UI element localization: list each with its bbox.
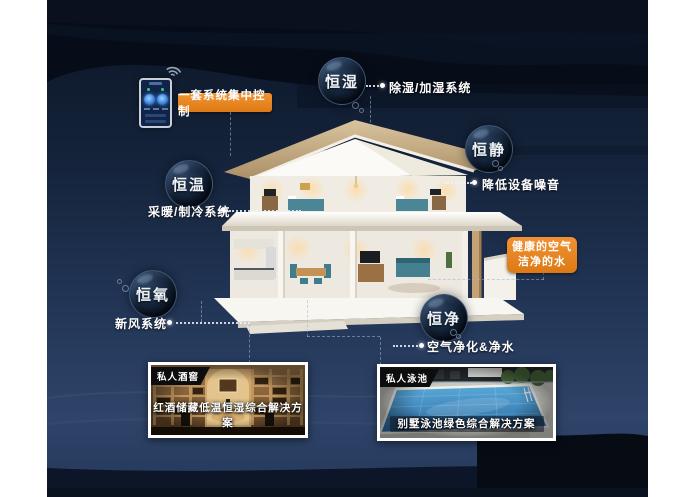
pool-caption: 别墅泳池绿色综合解决方案 (390, 416, 544, 432)
wine-cellar-tag: 私人酒窖 (151, 367, 210, 385)
bubble-constant-temperature-label: 恒温 (172, 174, 206, 195)
control-phone (139, 78, 172, 128)
bubble-constant-clean-label: 恒净 (427, 308, 461, 329)
wine-cellar-caption: 红酒储藏低温恒湿综合解决方案 (151, 400, 305, 430)
phone-text-row (153, 108, 159, 110)
bubble-trail (359, 108, 364, 113)
phone-titlebar (149, 82, 162, 85)
phone-knob-right (157, 94, 168, 105)
connector-humidity-roof (370, 96, 371, 132)
healthy-air-callout: 健康的空气 洁净的水 (507, 237, 577, 273)
bubble-constant-temperature: 恒温 (165, 160, 213, 208)
dotline-clean (393, 345, 418, 347)
wine-cellar-card: 私人酒窖 红酒储藏低温恒湿综合解决方案 (148, 362, 308, 438)
wifi-icon (164, 62, 182, 77)
phone-text-row (144, 108, 150, 110)
callout-line1: 健康的空气 (507, 240, 577, 255)
label-fresh-air-system: 新风系统 (115, 315, 167, 332)
dotline-humidity (366, 85, 379, 87)
callout-line2: 洁净的水 (507, 255, 577, 270)
bubble-trail (352, 102, 359, 109)
connector-phone-house (230, 112, 231, 156)
bubble-trail (122, 285, 129, 292)
dotline-quiet (444, 182, 472, 184)
bubble-trail (117, 279, 122, 284)
connector-house-down (307, 300, 308, 337)
dot-icon (167, 320, 172, 325)
pool-tag: 私人泳池 (380, 369, 439, 387)
central-control-banner-label: 一套系统集中控制 (178, 87, 272, 119)
bubble-constant-humidity: 恒湿 (318, 57, 366, 105)
label-dehumidify-system: 除湿/加湿系统 (389, 79, 471, 96)
pool-caption-band: 别墅泳池绿色综合解决方案 (380, 416, 553, 431)
phone-indicator-left (147, 88, 150, 91)
poster: 一套系统集中控制 恒湿 除湿/加湿系统 恒静 降低设备噪音 恒温 采暖/制冷系统… (0, 0, 700, 497)
phone-knob-left (144, 94, 155, 105)
phone-list-row (145, 114, 166, 117)
dotline-temperature (229, 210, 301, 212)
dot-icon (380, 83, 385, 88)
dot-icon (221, 208, 226, 213)
bubble-constant-oxygen-label: 恒氧 (136, 284, 170, 305)
label-noise-reduction: 降低设备噪音 (482, 176, 560, 193)
connector-winecard (249, 324, 250, 363)
bubble-constant-oxygen: 恒氧 (129, 270, 177, 318)
phone-text-row (162, 108, 168, 110)
pool-card: 私人泳池 别墅泳池绿色综合解决方案 (377, 364, 556, 441)
connector-poolcard (380, 337, 381, 365)
phone-list-row (145, 120, 166, 123)
phone-indicator-right (161, 88, 164, 91)
dot-icon (472, 180, 477, 185)
bubble-constant-quiet: 恒静 (465, 125, 513, 173)
label-heating-cooling-system: 采暖/制冷系统 (148, 203, 230, 220)
connector-house-pool-h (307, 336, 380, 337)
bubble-constant-quiet-label: 恒静 (472, 139, 506, 160)
dotline-oxygen (176, 322, 250, 324)
bubble-constant-humidity-label: 恒湿 (325, 71, 359, 92)
label-air-water-purification: 空气净化&净水 (427, 338, 515, 355)
bubble-trail (456, 334, 461, 339)
connector-callout-h (428, 279, 544, 280)
bubble-trail (498, 166, 503, 171)
connector-house-freshair (201, 301, 202, 322)
central-control-banner: 一套系统集中控制 (178, 93, 272, 112)
dot-icon (419, 343, 424, 348)
